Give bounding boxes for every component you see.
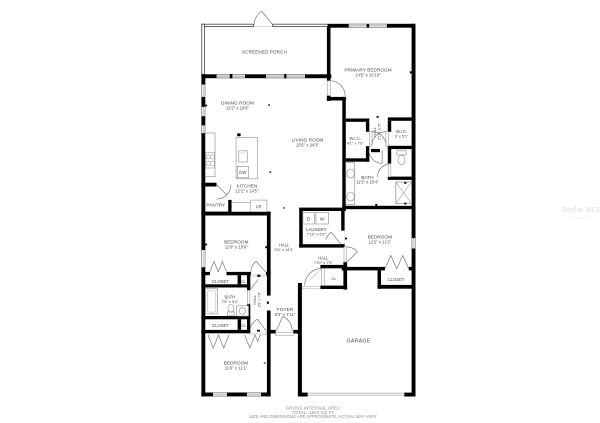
svg-text:CLOSET: CLOSET	[212, 323, 229, 328]
svg-text:4'1" x 7'9": 4'1" x 7'9"	[347, 141, 365, 146]
svg-text:DW: DW	[239, 170, 246, 175]
svg-text:5'3" x 7'11": 5'3" x 7'11"	[275, 312, 296, 317]
svg-text:D: D	[307, 217, 311, 223]
svg-text:CL: CL	[331, 276, 337, 281]
svg-text:PANTRY: PANTRY	[206, 202, 225, 207]
svg-text:12'2" x 14'5": 12'2" x 14'5"	[235, 188, 259, 193]
svg-text:Stellar MLS: Stellar MLS	[570, 215, 591, 220]
svg-text:CLOSET: CLOSET	[212, 279, 229, 284]
svg-text:CLOSET: CLOSET	[388, 277, 405, 282]
svg-text:14'5" x 16'10": 14'5" x 16'10"	[355, 72, 381, 77]
svg-text:CL: CL	[241, 323, 247, 328]
svg-text:FR: FR	[256, 204, 262, 209]
svg-text:3'7" x 11'6": 3'7" x 11'6"	[377, 122, 381, 140]
svg-text:13'5" x 24'3": 13'5" x 24'3"	[296, 142, 320, 147]
svg-text:CL: CL	[241, 279, 247, 284]
svg-text:GARAGE: GARAGE	[347, 339, 371, 345]
svg-text:7'5" x 5'4": 7'5" x 5'4"	[221, 299, 239, 304]
svg-text:2'9" x 7'6": 2'9" x 7'6"	[258, 291, 262, 307]
svg-text:SCREENED PORCH: SCREENED PORCH	[242, 50, 287, 55]
svg-text:12'2" x 10'6": 12'2" x 10'6"	[226, 105, 250, 110]
svg-text:11'9" x 10'6": 11'9" x 10'6"	[225, 244, 248, 249]
svg-text:Stellar MLS: Stellar MLS	[562, 205, 600, 214]
svg-text:12'2" x 11'2": 12'2" x 11'2"	[368, 239, 391, 244]
svg-text:11'3" x 10'4": 11'3" x 10'4"	[356, 179, 379, 184]
svg-text:HALL: HALL	[253, 295, 257, 305]
svg-text:7'10" x 6'2": 7'10" x 6'2"	[307, 232, 327, 237]
svg-text:3' x 5'1": 3' x 5'1"	[395, 134, 409, 139]
svg-text:11'9" x 11'1": 11'9" x 11'1"	[225, 365, 248, 370]
svg-text:5'3" x 14'3": 5'3" x 14'3"	[275, 247, 295, 252]
svg-text:SIZE AND DIMENSIONS ARE APPROX: SIZE AND DIMENSIONS ARE APPROXIMATE, ACT…	[249, 414, 377, 419]
svg-text:W: W	[320, 217, 325, 223]
svg-text:7'10" x 7'5": 7'10" x 7'5"	[314, 260, 334, 265]
